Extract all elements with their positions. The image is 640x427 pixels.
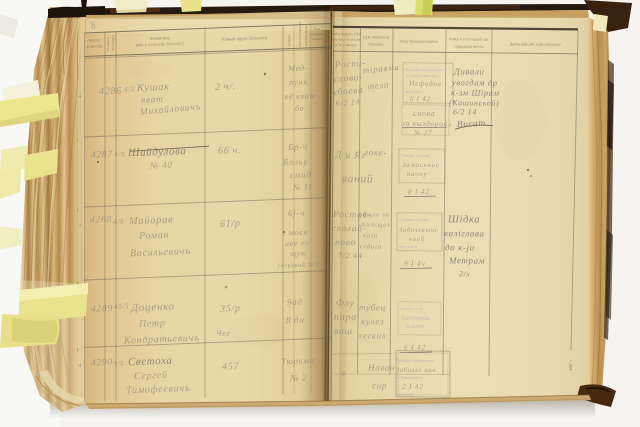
svg-text:за Замоскние начну: за Замоскние начну (406, 74, 439, 78)
svg-text:45/5: 45/5 (114, 302, 129, 311)
svg-text:Заболевшие: Заболевшие (399, 227, 438, 234)
svg-text:Майорав: Майорав (128, 215, 173, 228)
svg-text:4/5: 4/5 (113, 217, 124, 225)
svg-text:1917 г.: 1917 г. (568, 359, 573, 370)
svg-text:Какою болезнью: Какою болезнью (298, 22, 302, 47)
svg-text:9ад: 9ад (287, 297, 303, 308)
svg-text:Шайдулова: Шайдулова (127, 145, 186, 159)
svg-text:ново: ново (335, 238, 356, 248)
svg-text:4286: 4286 (99, 86, 122, 98)
svg-text:Кому и в который час: Кому и в который час (449, 36, 489, 41)
svg-text:Кушак: Кушак (136, 82, 170, 94)
svg-text:66 ч.: 66 ч. (218, 145, 241, 157)
svg-text:Бр-ч: Бр-ч (287, 141, 308, 152)
svg-text:и месяц: и месяц (87, 43, 103, 49)
svg-text:Чел: Чел (216, 328, 230, 338)
svg-text:457: 457 (222, 361, 239, 373)
svg-text:Дивали: Дивали (453, 66, 485, 76)
svg-text:6 І 42: 6 І 42 (410, 95, 431, 103)
svg-text:2/х: 2/х (459, 269, 471, 278)
svg-text:Светоха: Светоха (128, 355, 172, 369)
svg-text:за выздоровл: за выздоровл (401, 119, 452, 129)
svg-text:передана весть: передана весть (454, 44, 483, 49)
svg-text:кази: кази (363, 232, 378, 239)
svg-text:кем часл болезнь: кем часл болезнь (331, 37, 360, 41)
svg-text:2 І 42: 2 І 42 (402, 382, 424, 391)
svg-text:ваний: ваний (342, 172, 373, 185)
svg-text:вват: вват (141, 95, 164, 106)
svg-text:Петр: Петр (138, 318, 166, 330)
svg-text:35/р: 35/р (219, 303, 241, 315)
svg-text:Кем прислан болен: Кем прислан болен (400, 39, 438, 44)
svg-text:седьга: седьга (360, 243, 382, 250)
svg-text:Граждан отправл: Граждан отправл (401, 154, 430, 158)
svg-text:Шідка: Шідка (447, 214, 480, 225)
svg-text:тела: тела (367, 79, 390, 91)
svg-text:Число: Число (88, 37, 101, 42)
svg-text:Граждан отправл: Граждан отправл (399, 218, 428, 222)
svg-text:Тюрьма: Тюрьма (281, 355, 315, 366)
svg-text:6/2 14: 6/2 14 (335, 97, 360, 108)
svg-text:+: + (78, 223, 82, 229)
svg-text:Заболевание РКК: Заболевание РКК (331, 32, 362, 36)
svg-text:4289: 4289 (91, 304, 113, 315)
svg-text:Больу: Больу (282, 156, 308, 167)
svg-text:№ 11: № 11 (292, 182, 313, 192)
svg-text:Ђ.: Ђ. (90, 20, 99, 29)
svg-text:4290: 4290 (91, 358, 113, 369)
svg-text:заболел днем: заболел днем (304, 26, 308, 47)
svg-text:её кват: её кват (285, 91, 316, 101)
svg-text:9/5: 9/5 (113, 359, 124, 367)
svg-text:7/2 44: 7/2 44 (338, 251, 362, 260)
svg-text:ба: ба (295, 104, 304, 113)
svg-text:Заголовок: Заголовок (401, 316, 430, 322)
svg-text:Мед-: Мед- (287, 62, 308, 73)
svg-text:к-зм Шірам: к-зм Шірам (451, 87, 500, 98)
svg-text:Чем: Чем (314, 27, 321, 31)
svg-text:в 36 комнате: в 36 комнате (335, 43, 356, 47)
svg-text:2 ч/.: 2 ч/. (215, 81, 236, 93)
svg-text:легких: легких (357, 330, 387, 340)
svg-text:№ 2: № 2 (289, 372, 307, 383)
svg-text:8 дн: 8 дн (286, 315, 305, 326)
svg-text:+: + (78, 94, 82, 100)
svg-text:№ 27: № 27 (413, 129, 432, 137)
svg-text:сир: сир (372, 380, 387, 390)
svg-text:в: в (342, 368, 346, 377)
svg-text:Заболел нач: Заболел нач (396, 367, 436, 374)
svg-text:с моск: с моск (282, 227, 308, 237)
svg-text:Нефедов: Нефедов (408, 79, 442, 88)
svg-text:4288: 4288 (90, 215, 112, 226)
svg-text:Граждан отправляется: Граждан отправляется (405, 68, 443, 72)
svg-text:направл.: направл. (310, 32, 324, 37)
svg-text:6ј-ч: 6ј-ч (288, 208, 305, 219)
svg-text:увогдам др: увогдам др (451, 77, 498, 87)
svg-text:Граждан отпр: Граждан отпр (400, 307, 423, 311)
svg-text:за Замоскние ко: за Замоскние ко (396, 376, 423, 380)
svg-text:ваш: ваш (334, 326, 353, 337)
svg-text:Возраст: Возраст (287, 34, 291, 47)
svg-text:пунк: пунк (289, 76, 308, 87)
svg-text:8 І 42: 8 І 42 (408, 187, 430, 196)
svg-text:+: + (78, 363, 82, 369)
svg-text:Граждан отправляется: Граждан отправляется (396, 359, 434, 363)
svg-text:врач ком 6: врач ком 6 (395, 393, 413, 397)
svg-text:врач ком 6: врач ком 6 (405, 90, 423, 94)
svg-text:врач ком 6: врач ком 6 (399, 245, 417, 249)
svg-text:61/р: 61/р (220, 218, 241, 230)
svg-text:№ записи: № записи (106, 36, 110, 51)
svg-text:4/2: 4/2 (124, 85, 135, 93)
svg-text:Навач: Навач (367, 362, 395, 372)
svg-text:начну: начну (407, 170, 427, 178)
svg-text:Фамилия,: Фамилия, (150, 35, 170, 41)
svg-text:по порядку: по порядку (111, 34, 115, 51)
svg-text:коей: коей (409, 235, 425, 243)
svg-text:Замоскние: Замоскние (402, 161, 440, 169)
svg-text:Висат: Висат (457, 119, 487, 131)
svg-text:смид: смид (290, 169, 312, 180)
svg-text:Д и Яг: Д и Яг (334, 150, 366, 161)
svg-text:сьески: сьески (406, 324, 424, 330)
svg-text:Васильевичъ: Васильевичъ (130, 246, 191, 259)
svg-text:нее по: нее по (285, 238, 310, 248)
svg-text:локе-: локе- (363, 147, 387, 157)
svg-text:№ 40: № 40 (149, 160, 173, 171)
svg-text:Дальнейшие заболевания: Дальнейшие заболевания (509, 41, 560, 47)
svg-text:6/2 14: 6/2 14 (453, 107, 477, 116)
svg-text:больн.: больн. (312, 37, 322, 41)
svg-text:Метрам: Метрам (448, 255, 485, 265)
svg-text:болезнь: болезнь (368, 41, 383, 46)
svg-text:каліглава: каліглава (444, 228, 485, 238)
svg-text:Сергей: Сергей (134, 370, 168, 382)
svg-text:до к-ји: до к-ји (445, 242, 475, 252)
svg-text:Кем заверена: Кем заверена (363, 34, 389, 39)
svg-text:общие за-: общие за- (359, 211, 392, 218)
svg-text:9 І 4ч: 9 І 4ч (404, 259, 426, 268)
svg-text:щую: щую (290, 248, 307, 258)
svg-text:Роман: Роман (138, 230, 169, 242)
svg-text:снова: снова (413, 109, 435, 118)
svg-text:тилущах: тилущах (361, 221, 391, 228)
svg-text:4/5: 4/5 (114, 150, 125, 158)
svg-text:Доценко: Доценко (130, 301, 175, 315)
svg-text:4287: 4287 (91, 150, 113, 161)
